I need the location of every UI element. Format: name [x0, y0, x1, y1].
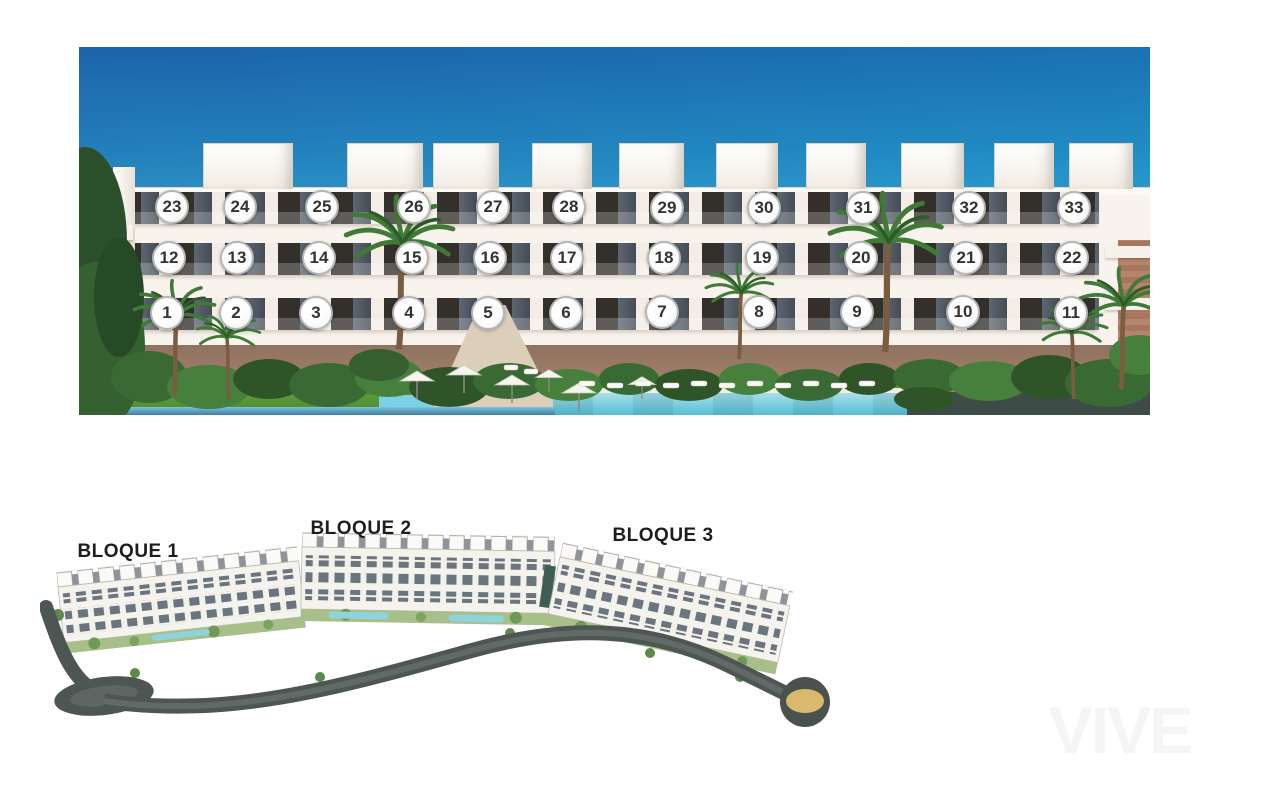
end-balcony-slab: [1105, 298, 1150, 310]
unit-marker-13[interactable]: 13: [220, 241, 254, 275]
elevation-photo: 2324252627282930313233121314151617181920…: [79, 47, 1150, 415]
block-label-1: BLOQUE 1: [77, 541, 178, 563]
penthouse-box: [619, 143, 684, 189]
unit-marker-30[interactable]: 30: [747, 191, 781, 225]
watermark: VIVE: [1000, 685, 1240, 785]
unit-marker-28[interactable]: 28: [552, 190, 586, 224]
unit-marker-18[interactable]: 18: [647, 241, 681, 275]
penthouse-box: [716, 143, 778, 189]
unit-marker-3[interactable]: 3: [299, 296, 333, 330]
unit-marker-12[interactable]: 12: [152, 241, 186, 275]
unit-marker-33[interactable]: 33: [1057, 191, 1091, 225]
penthouse-box: [203, 143, 293, 189]
unit-marker-21[interactable]: 21: [949, 241, 983, 275]
unit-marker-19[interactable]: 19: [745, 241, 779, 275]
unit-marker-2[interactable]: 2: [219, 296, 253, 330]
unit-marker-1[interactable]: 1: [150, 296, 184, 330]
penthouse-box: [1069, 143, 1133, 189]
unit-marker-15[interactable]: 15: [395, 241, 429, 275]
block-label-3: BLOQUE 3: [612, 525, 713, 547]
block-label-2: BLOQUE 2: [310, 518, 411, 540]
roundabout-center: [786, 689, 824, 713]
unit-marker-31[interactable]: 31: [846, 191, 880, 225]
penthouse-box: [901, 143, 964, 189]
unit-marker-8[interactable]: 8: [742, 295, 776, 329]
bloque-3-building: [545, 542, 793, 674]
end-balcony-slab: [1105, 246, 1150, 258]
penthouse-box: [806, 143, 866, 189]
left-balcony-slab: [79, 225, 133, 240]
unit-marker-10[interactable]: 10: [946, 295, 980, 329]
unit-marker-16[interactable]: 16: [473, 241, 507, 275]
penthouse-box: [347, 143, 423, 189]
unit-marker-17[interactable]: 17: [550, 241, 584, 275]
left-stair-tower: [113, 167, 135, 355]
unit-marker-27[interactable]: 27: [476, 190, 510, 224]
dark-deck: [907, 392, 1150, 415]
unit-marker-26[interactable]: 26: [397, 190, 431, 224]
swimming-pool: [553, 393, 907, 415]
unit-marker-6[interactable]: 6: [549, 296, 583, 330]
page: 2324252627282930313233121314151617181920…: [0, 0, 1280, 800]
bloque-2-building: [301, 532, 556, 625]
unit-marker-7[interactable]: 7: [645, 295, 679, 329]
unit-marker-25[interactable]: 25: [305, 190, 339, 224]
unit-marker-9[interactable]: 9: [840, 295, 874, 329]
site-plan: BLOQUE 1BLOQUE 2BLOQUE 3: [40, 505, 880, 740]
unit-marker-11[interactable]: 11: [1054, 296, 1088, 330]
unit-marker-14[interactable]: 14: [302, 241, 336, 275]
left-balcony-slab: [79, 272, 125, 288]
unit-marker-20[interactable]: 20: [844, 241, 878, 275]
unit-marker-22[interactable]: 22: [1055, 241, 1089, 275]
penthouse-box: [994, 143, 1054, 189]
unit-marker-5[interactable]: 5: [471, 296, 505, 330]
penthouse-box: [433, 143, 499, 189]
unit-marker-24[interactable]: 24: [223, 190, 257, 224]
unit-marker-23[interactable]: 23: [155, 190, 189, 224]
water-edge: [79, 407, 555, 415]
unit-marker-4[interactable]: 4: [392, 296, 426, 330]
unit-marker-29[interactable]: 29: [650, 191, 684, 225]
unit-marker-32[interactable]: 32: [952, 191, 986, 225]
penthouse-box: [532, 143, 592, 189]
